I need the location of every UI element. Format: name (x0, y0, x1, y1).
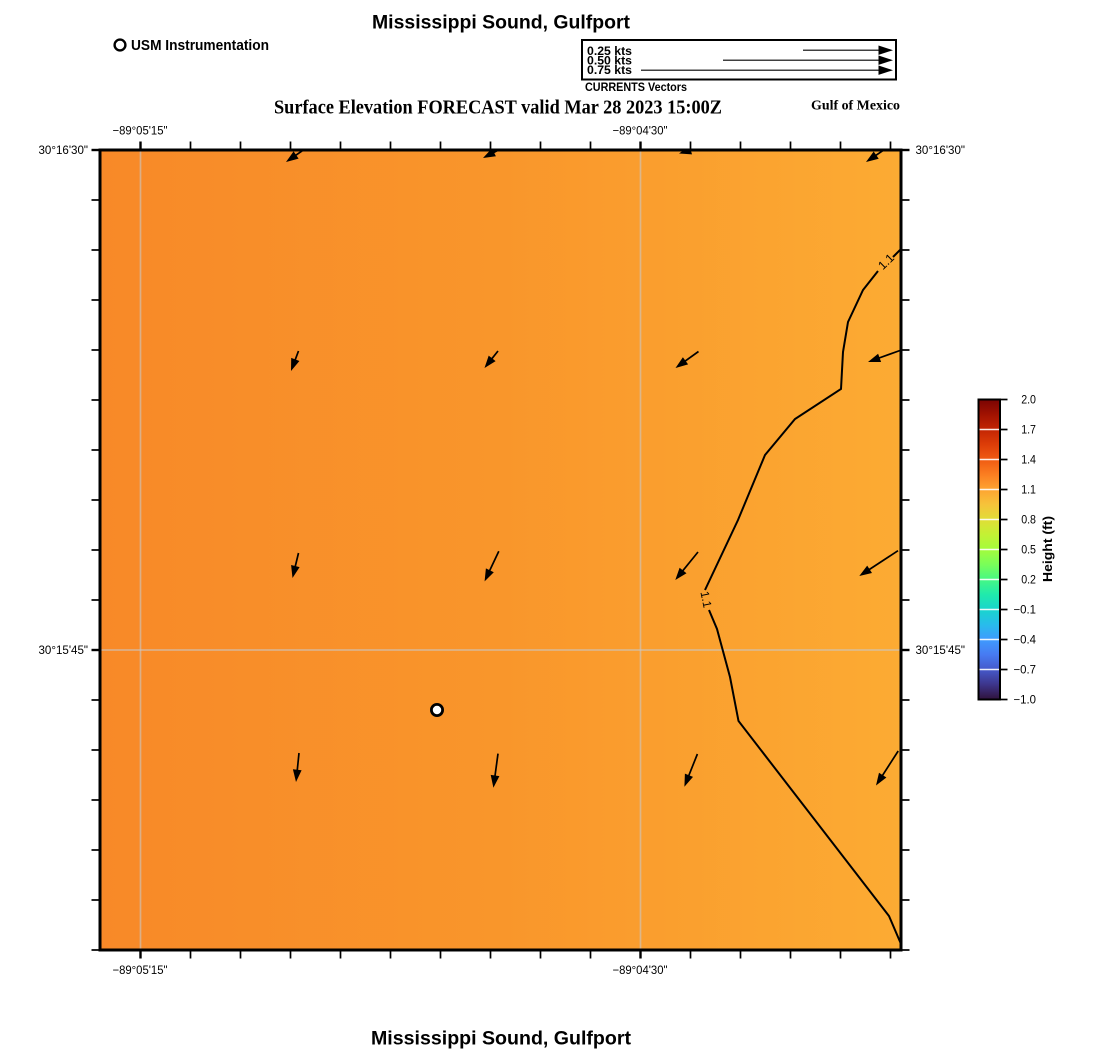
svg-text:30°16'30": 30°16'30" (39, 143, 89, 157)
svg-text:0.8: 0.8 (1021, 515, 1036, 527)
svg-text:CURRENTS Vectors: CURRENTS Vectors (585, 80, 687, 94)
svg-text:−0.1: −0.1 (1014, 605, 1037, 617)
svg-text:1.7: 1.7 (1021, 425, 1036, 437)
svg-text:−89°04'30": −89°04'30" (613, 963, 668, 977)
svg-text:1.4: 1.4 (1021, 455, 1036, 467)
svg-text:0.2: 0.2 (1021, 575, 1036, 587)
svg-text:−89°05'15": −89°05'15" (113, 124, 168, 138)
svg-text:−0.7: −0.7 (1014, 665, 1037, 677)
svg-text:Surface Elevation FORECAST val: Surface Elevation FORECAST valid Mar 28 … (274, 97, 722, 119)
svg-text:USM Instrumentation: USM Instrumentation (131, 37, 269, 54)
svg-text:−89°05'15": −89°05'15" (113, 963, 168, 977)
svg-text:30°16'30": 30°16'30" (916, 143, 966, 157)
svg-text:30°15'45": 30°15'45" (916, 643, 966, 657)
svg-text:0.75 kts: 0.75 kts (587, 63, 632, 77)
svg-text:Height (ft): Height (ft) (1040, 516, 1055, 582)
svg-text:−0.4: −0.4 (1014, 635, 1037, 647)
svg-text:−1.0: −1.0 (1014, 695, 1037, 707)
svg-text:Mississippi Sound, Gulfport: Mississippi Sound, Gulfport (371, 1028, 632, 1050)
svg-text:−89°04'30": −89°04'30" (613, 124, 668, 138)
svg-text:Gulf of Mexico: Gulf of Mexico (811, 98, 900, 113)
svg-text:Mississippi Sound, Gulfport: Mississippi Sound, Gulfport (372, 12, 631, 34)
svg-text:2.0: 2.0 (1021, 395, 1036, 407)
svg-text:30°15'45": 30°15'45" (39, 643, 89, 657)
svg-text:1.1: 1.1 (1021, 485, 1036, 497)
svg-text:0.5: 0.5 (1021, 545, 1036, 557)
